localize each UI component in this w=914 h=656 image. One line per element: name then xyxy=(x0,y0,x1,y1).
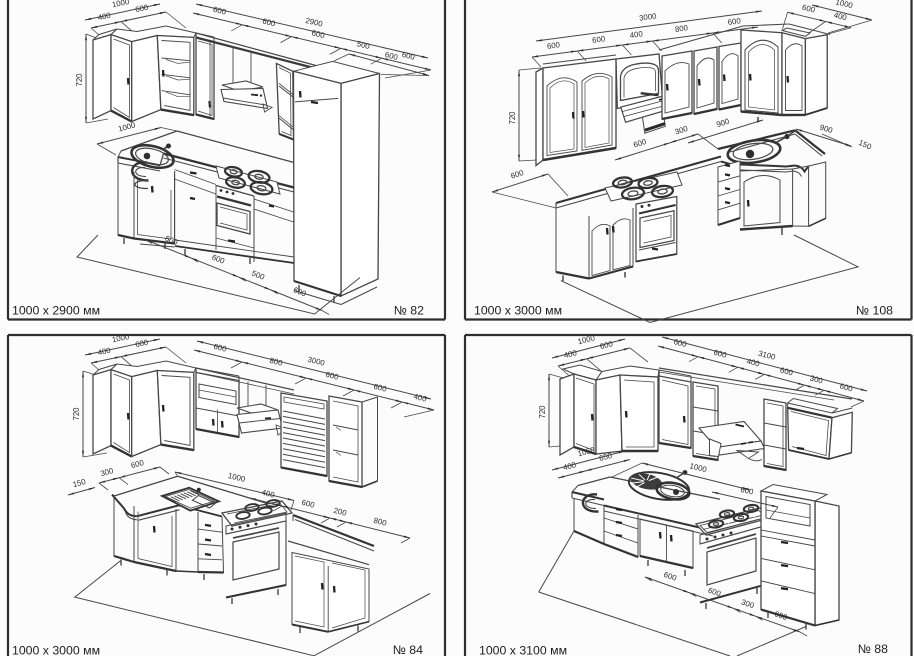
svg-text:№ 108: № 108 xyxy=(856,304,893,318)
svg-text:720: 720 xyxy=(75,73,84,87)
svg-text:1000 x 3000 мм: 1000 x 3000 мм xyxy=(12,644,100,656)
svg-text:1000 x 3000 мм: 1000 x 3000 мм xyxy=(474,304,562,318)
svg-text:№ 88: № 88 xyxy=(858,642,888,656)
svg-text:720: 720 xyxy=(538,405,547,419)
svg-text:720: 720 xyxy=(72,407,81,421)
svg-text:800: 800 xyxy=(674,23,689,34)
svg-text:400: 400 xyxy=(629,29,644,40)
svg-text:№ 84: № 84 xyxy=(393,643,423,656)
svg-text:600: 600 xyxy=(727,16,742,27)
svg-text:600: 600 xyxy=(546,40,561,51)
svg-text:1000 x 3100 мм: 1000 x 3100 мм xyxy=(479,644,567,656)
svg-text:720: 720 xyxy=(508,111,517,125)
svg-text:600: 600 xyxy=(592,34,607,45)
svg-text:№ 82: № 82 xyxy=(394,304,424,318)
svg-text:1000 x 2900 мм: 1000 x 2900 мм xyxy=(12,304,100,318)
